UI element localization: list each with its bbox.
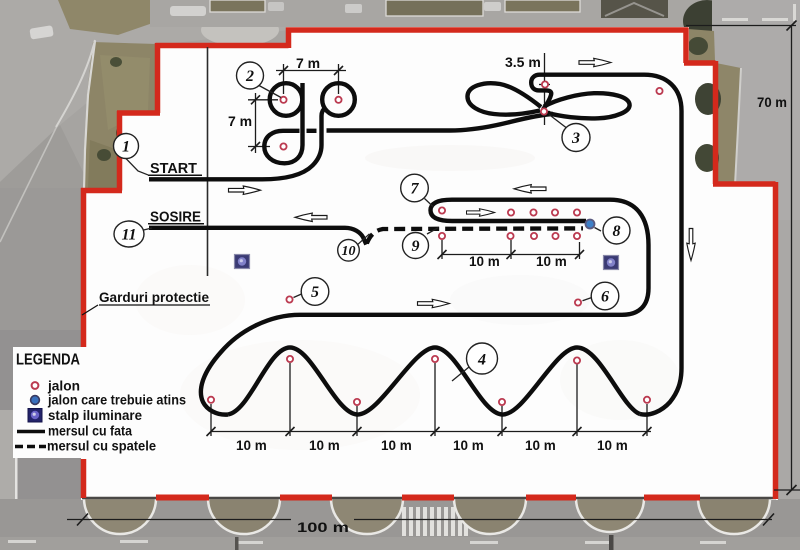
svg-text:4: 4 <box>477 352 486 369</box>
svg-text:jalon care trebuie atins: jalon care trebuie atins <box>47 393 186 408</box>
svg-text:mersul cu spatele: mersul cu spatele <box>47 439 156 454</box>
svg-text:jalon: jalon <box>47 379 80 394</box>
svg-text:10: 10 <box>342 244 356 259</box>
svg-text:10 m: 10 m <box>236 438 267 453</box>
svg-text:6: 6 <box>601 289 609 306</box>
svg-text:7: 7 <box>411 181 420 198</box>
svg-text:3: 3 <box>571 130 580 147</box>
svg-text:LEGENDA: LEGENDA <box>16 352 80 369</box>
svg-text:10 m: 10 m <box>309 438 340 453</box>
svg-text:9: 9 <box>412 238 420 255</box>
svg-text:5: 5 <box>311 284 319 301</box>
svg-text:stalp iluminare: stalp iluminare <box>48 408 142 423</box>
svg-text:10 m: 10 m <box>525 438 556 453</box>
svg-text:70 m: 70 m <box>757 94 787 110</box>
svg-text:10 m: 10 m <box>453 438 484 453</box>
svg-text:7 m: 7 m <box>296 55 320 71</box>
svg-text:7 m: 7 m <box>228 113 252 129</box>
svg-text:Garduri protectie: Garduri protectie <box>99 289 209 305</box>
svg-text:1: 1 <box>122 139 130 156</box>
svg-text:10 m: 10 m <box>469 254 500 269</box>
svg-text:10 m: 10 m <box>536 254 567 269</box>
svg-text:8: 8 <box>613 223 621 240</box>
svg-text:100 m: 100 m <box>297 519 349 535</box>
svg-text:mersul cu fata: mersul cu fata <box>48 424 132 439</box>
svg-text:3.5 m: 3.5 m <box>505 54 541 70</box>
svg-text:2: 2 <box>245 68 254 85</box>
svg-text:10 m: 10 m <box>381 438 412 453</box>
svg-text:11: 11 <box>121 227 136 244</box>
svg-text:10 m: 10 m <box>597 438 628 453</box>
